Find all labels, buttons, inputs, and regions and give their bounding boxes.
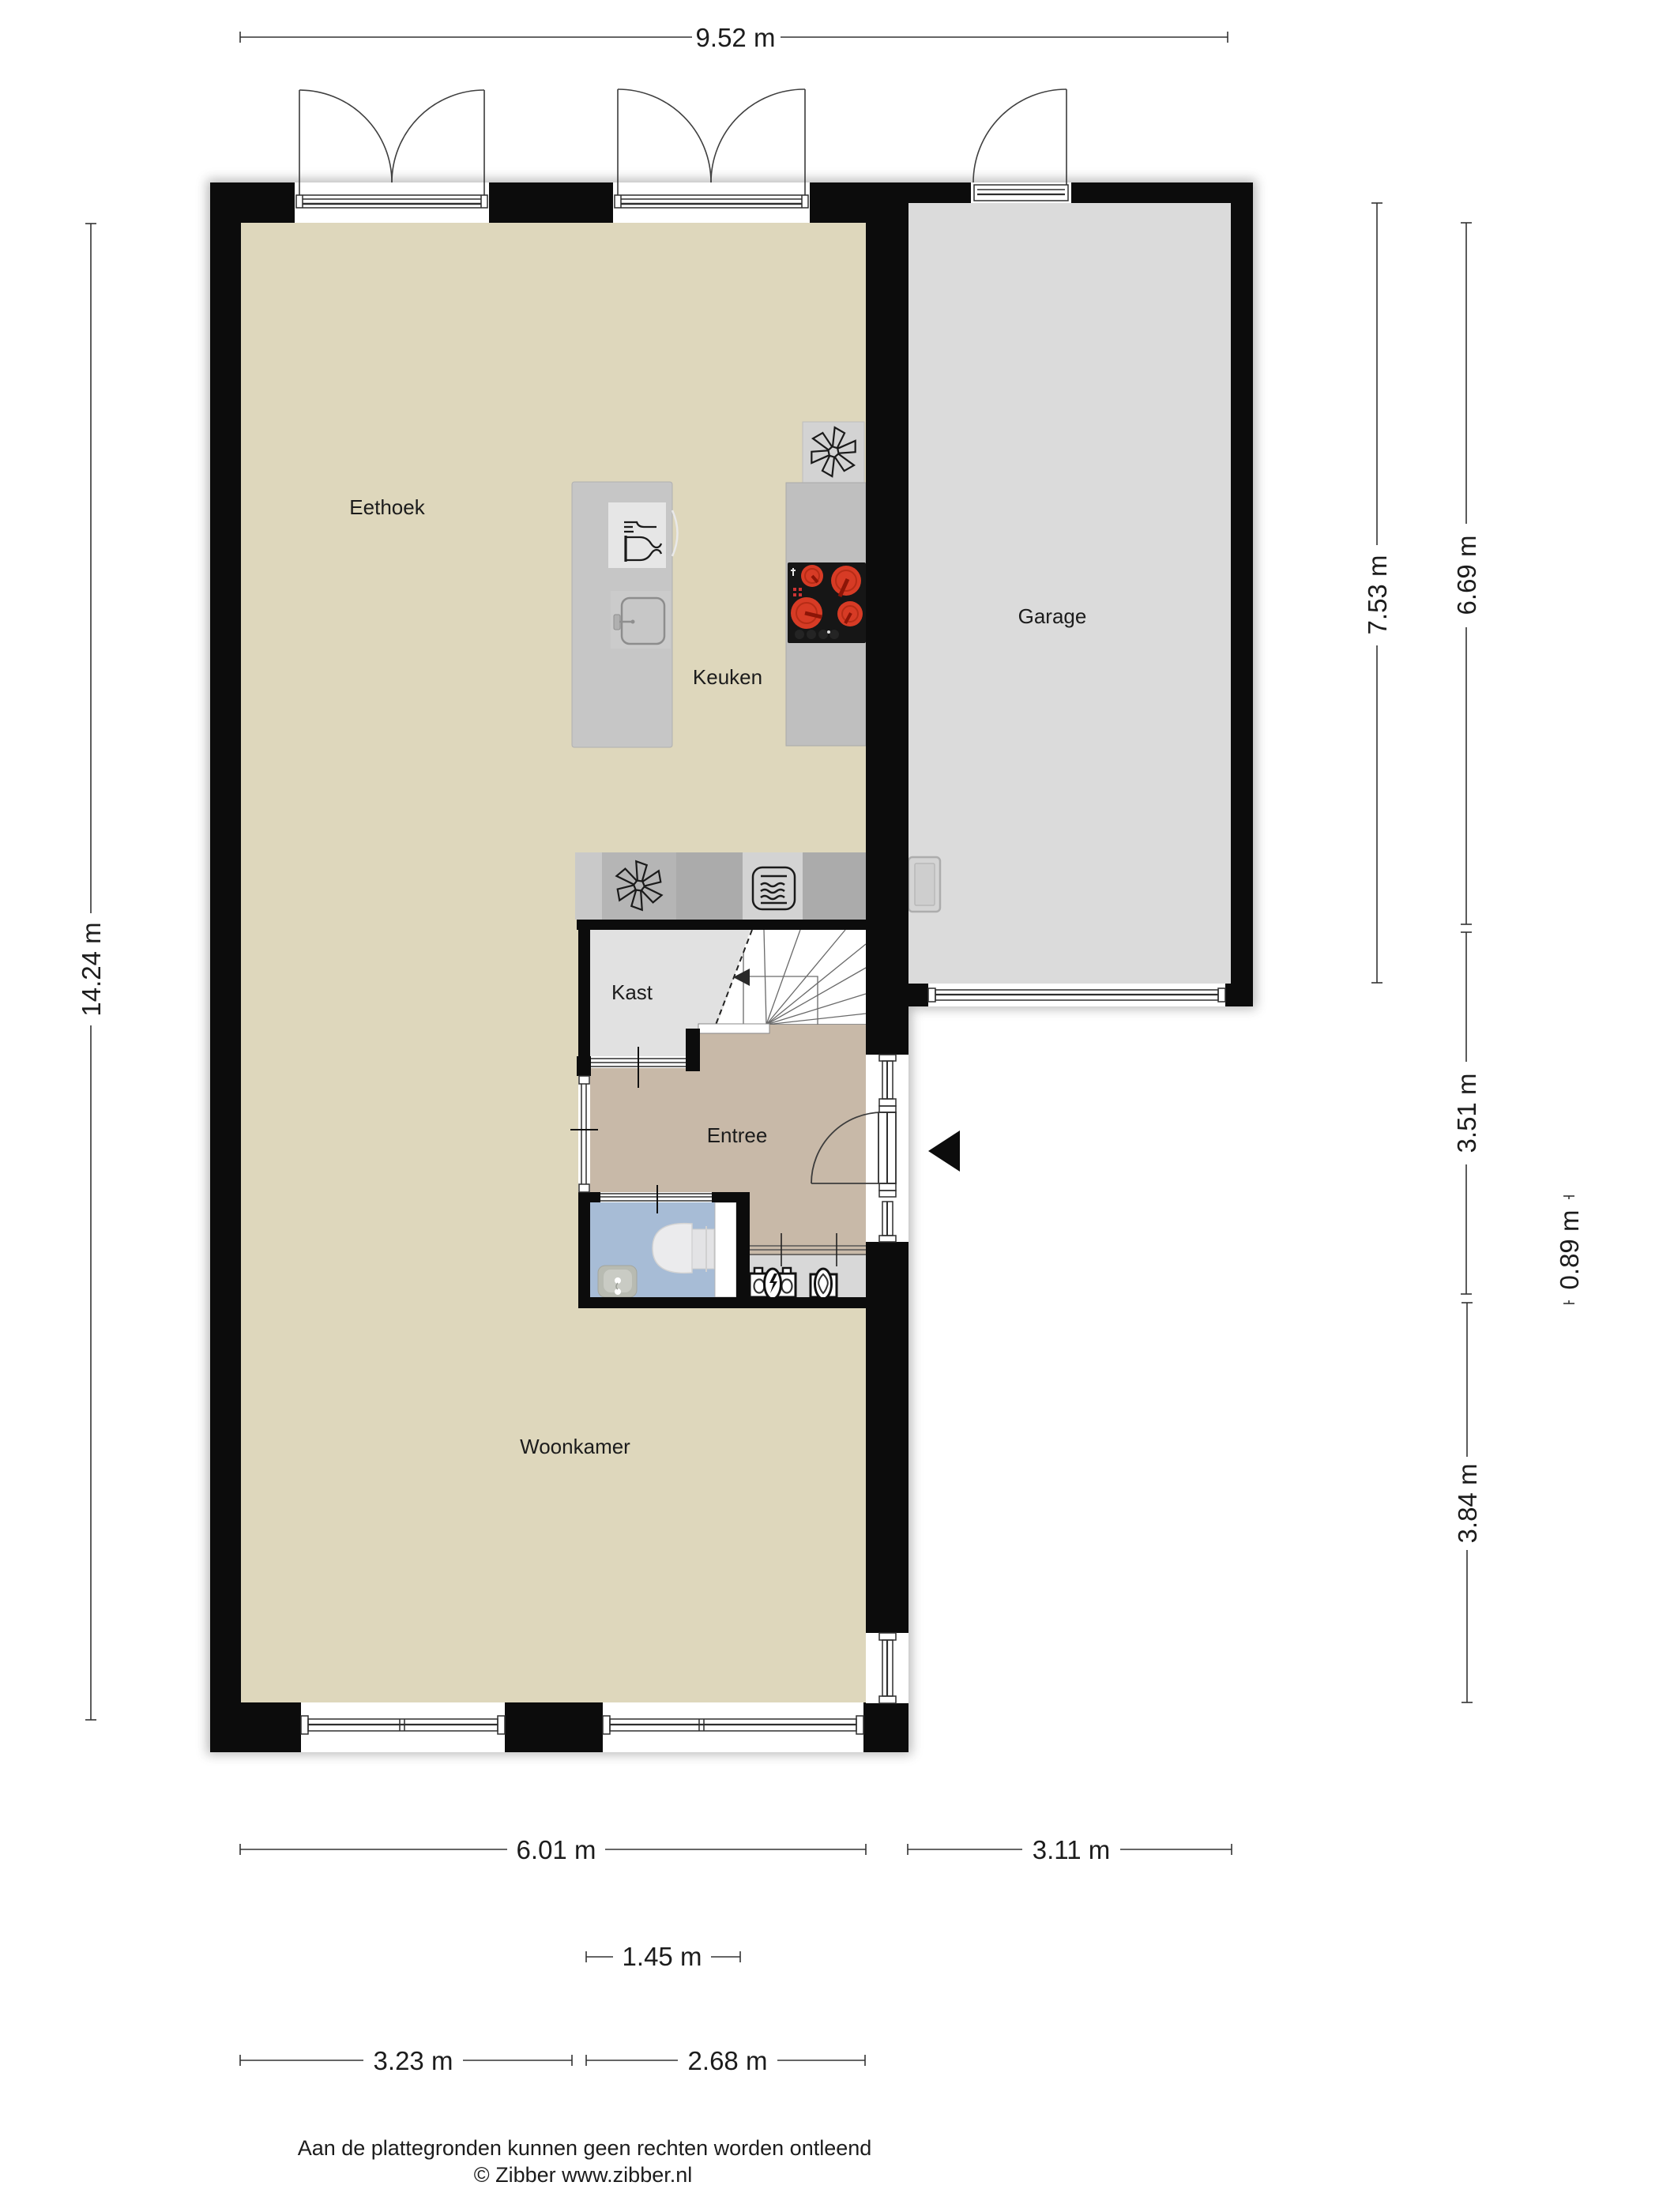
- svg-text:Woonkamer: Woonkamer: [520, 1435, 630, 1458]
- svg-text:0.89 m: 0.89 m: [1555, 1210, 1584, 1290]
- svg-text:© Zibber www.zibber.nl: © Zibber www.zibber.nl: [474, 2163, 693, 2187]
- svg-text:6.01 m: 6.01 m: [517, 1835, 596, 1864]
- svg-text:3.23 m: 3.23 m: [374, 2046, 453, 2075]
- svg-text:Eethoek: Eethoek: [349, 495, 425, 519]
- svg-text:9.52 m: 9.52 m: [696, 23, 776, 52]
- svg-text:14.24 m: 14.24 m: [77, 922, 106, 1016]
- svg-text:3.84 m: 3.84 m: [1453, 1464, 1482, 1544]
- svg-text:3.51 m: 3.51 m: [1452, 1074, 1481, 1153]
- svg-text:2.68 m: 2.68 m: [688, 2046, 768, 2075]
- svg-text:1.45 m: 1.45 m: [623, 1942, 702, 1971]
- svg-text:Kast: Kast: [611, 980, 653, 1004]
- svg-text:Entree: Entree: [707, 1123, 768, 1147]
- svg-text:7.53 m: 7.53 m: [1363, 555, 1392, 635]
- svg-text:3.11 m: 3.11 m: [1033, 1835, 1110, 1864]
- svg-text:Aan de plattegronden kunnen ge: Aan de plattegronden kunnen geen rechten…: [298, 2136, 872, 2160]
- svg-text:Keuken: Keuken: [693, 665, 762, 689]
- svg-text:Garage: Garage: [1018, 604, 1087, 628]
- svg-text:6.69 m: 6.69 m: [1452, 536, 1481, 615]
